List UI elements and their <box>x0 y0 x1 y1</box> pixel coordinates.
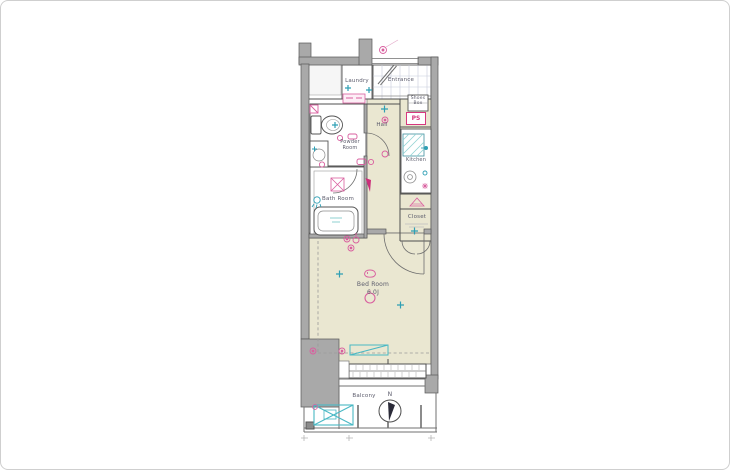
north-compass-icon <box>379 400 401 422</box>
bath-room-label: Bath Room <box>317 196 359 203</box>
closet-label: Closet <box>403 214 431 221</box>
hall-label: Hall <box>369 122 395 129</box>
dimension-ticks <box>301 435 435 441</box>
compass-north-label: N <box>384 391 396 399</box>
shoes-box-label: Shoes Box <box>407 96 429 106</box>
entrance-label: Entrance <box>379 77 423 84</box>
bed-room-label: Bed Room <box>345 281 401 289</box>
pipe-space-label: PS <box>406 112 426 125</box>
powder-room-label: Powder Room <box>334 139 366 151</box>
bed-room-size-label: 6.0J <box>345 289 401 297</box>
kitchen-label: Kitchen <box>400 157 432 163</box>
laundry-label: Laundry <box>341 78 373 85</box>
floor-plan-page: Laundry Entrance Shoes Box PS Hall Kitch… <box>0 0 730 470</box>
washing-machine-pan-icon <box>343 94 365 103</box>
washbasin-icon <box>310 141 328 167</box>
balcony-label: Balcony <box>347 393 381 400</box>
bathtub-icon <box>314 207 358 235</box>
outdoor-unit-icon <box>314 405 353 425</box>
